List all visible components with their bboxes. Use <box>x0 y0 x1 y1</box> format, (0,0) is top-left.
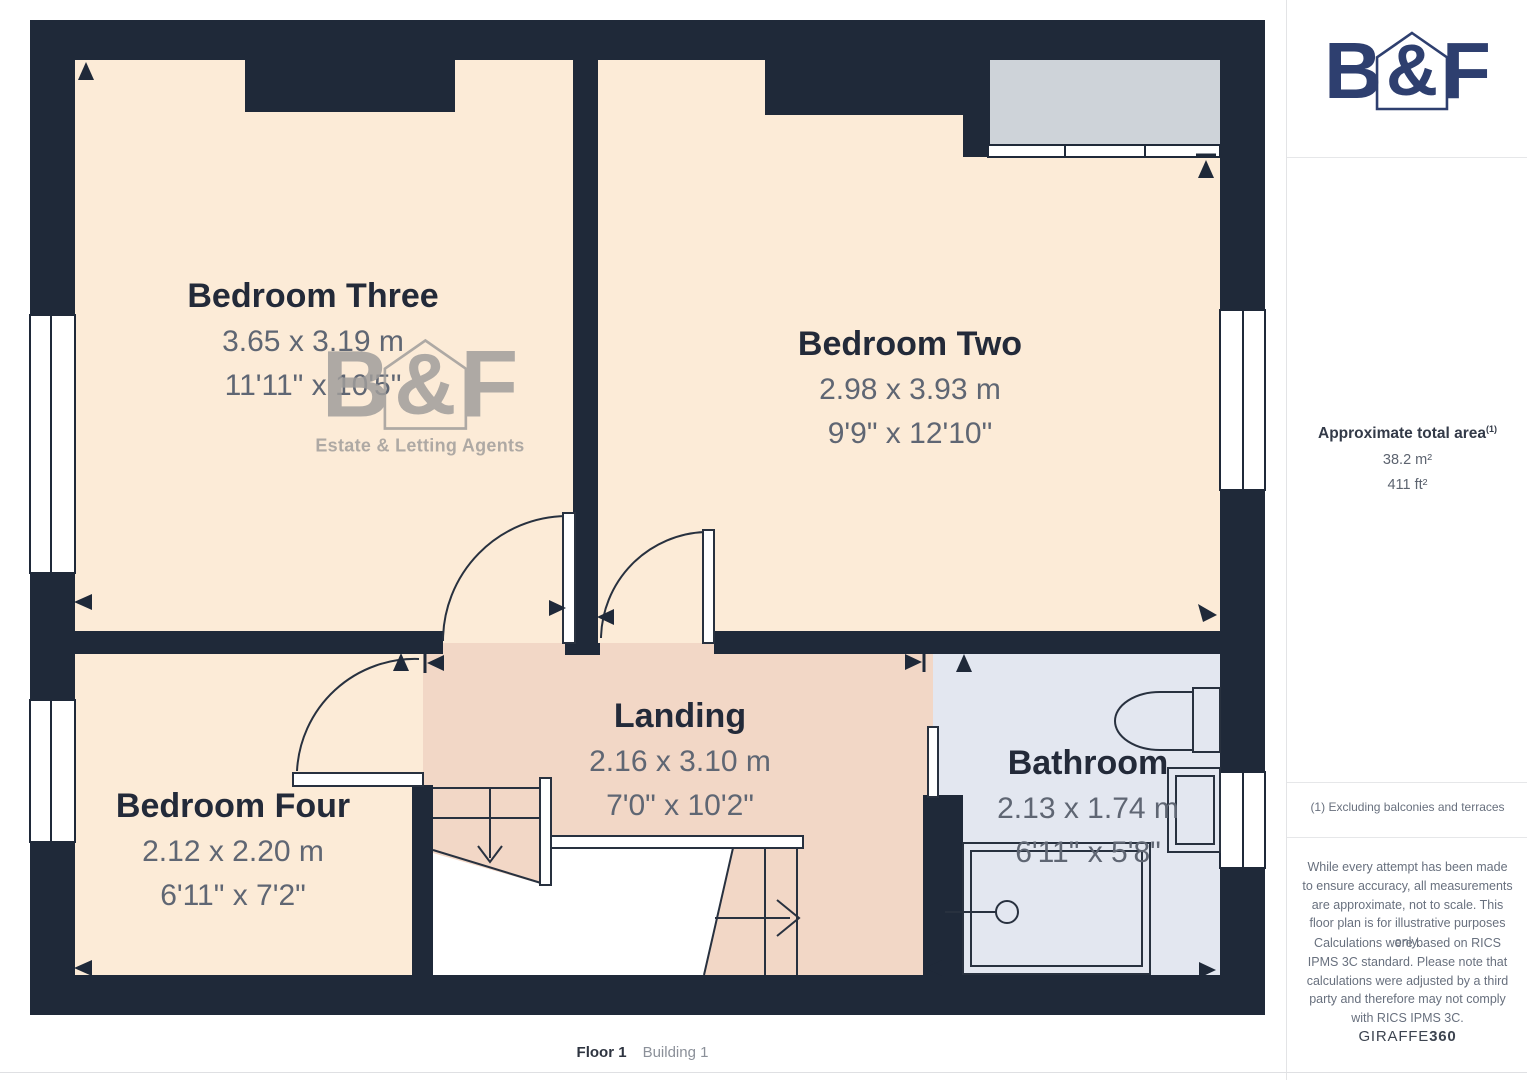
floor-plan-drawing <box>0 0 1285 1080</box>
room-label-bedroom-three: Bedroom Three 3.65 x 3.19 m 11'11" x 10'… <box>187 272 438 408</box>
divider <box>1287 157 1527 158</box>
room-name: Bedroom Four <box>116 782 350 830</box>
banister <box>540 778 551 885</box>
banister <box>551 836 803 848</box>
logo-ampersand: & <box>1386 35 1438 107</box>
sidebar-brand-logo: B & F <box>1287 28 1527 114</box>
bf-logo: B & F <box>1324 28 1491 114</box>
closet-area <box>988 60 1220 147</box>
info-sidebar: B & F Approximate total area(1) 38.2 m² … <box>1286 0 1527 1080</box>
total-area-title: Approximate total area(1) <box>1287 424 1527 443</box>
giraffe360-logo: GIRAFFE360 <box>1287 1028 1527 1045</box>
floor-plan: Bedroom Three 3.65 x 3.19 m 11'11" x 10'… <box>0 0 1285 1080</box>
room-dimensions-imperial: 11'11" x 10'5" <box>187 364 438 408</box>
door-leaf <box>563 513 575 643</box>
room-name: Bathroom <box>997 739 1179 787</box>
room-dimensions-imperial: 9'9" x 12'10" <box>798 412 1022 456</box>
disclaimer-rics: Calculations were based on RICS IPMS 3C … <box>1301 934 1514 1028</box>
room-dimensions-imperial: 6'11" x 5'8" <box>997 831 1179 875</box>
total-area-block: Approximate total area(1) 38.2 m² 411 ft… <box>1287 424 1527 493</box>
floor-label: Floor 1 <box>577 1044 627 1061</box>
stairwell-void <box>433 848 733 975</box>
divider <box>1287 782 1527 783</box>
building-label: Building 1 <box>643 1044 709 1061</box>
room-dimensions-metric: 3.65 x 3.19 m <box>187 320 438 364</box>
bottom-divider <box>0 1072 1527 1073</box>
floorplan-page: Bedroom Three 3.65 x 3.19 m 11'11" x 10'… <box>0 0 1527 1080</box>
room-name: Bedroom Three <box>187 272 438 320</box>
plan-footer: Floor 1Building 1 <box>0 1044 1285 1061</box>
room-dimensions-metric: 2.12 x 2.20 m <box>116 830 350 874</box>
room-dimensions-imperial: 7'0" x 10'2" <box>589 784 771 828</box>
room-dimensions-metric: 2.98 x 3.93 m <box>798 368 1022 412</box>
room-dimensions-metric: 2.13 x 1.74 m <box>997 787 1179 831</box>
room-label-landing: Landing 2.16 x 3.10 m 7'0" x 10'2" <box>589 692 771 828</box>
area-footnote: (1) Excluding balconies and terraces <box>1287 800 1527 814</box>
logo-house-ampersand: & <box>1374 28 1450 114</box>
room-label-bedroom-two: Bedroom Two 2.98 x 3.93 m 9'9" x 12'10" <box>798 320 1022 456</box>
room-dimensions-metric: 2.16 x 3.10 m <box>589 740 771 784</box>
room-label-bathroom: Bathroom 2.13 x 1.74 m 6'11" x 5'8" <box>997 739 1179 875</box>
window <box>30 315 75 573</box>
room-name: Landing <box>589 692 771 740</box>
divider <box>1287 837 1527 838</box>
door-leaf <box>703 530 714 643</box>
room-dimensions-imperial: 6'11" x 7'2" <box>116 874 350 918</box>
total-area-imperial: 411 ft² <box>1287 477 1527 493</box>
total-area-metric: 38.2 m² <box>1287 452 1527 468</box>
giraffe360-suffix: 360 <box>1429 1028 1456 1045</box>
giraffe360-name: GIRAFFE <box>1358 1028 1429 1045</box>
room-label-bedroom-four: Bedroom Four 2.12 x 2.20 m 6'11" x 7'2" <box>116 782 350 918</box>
footnote-marker: (1) <box>1486 424 1497 434</box>
door-leaf <box>928 727 938 797</box>
room-name: Bedroom Two <box>798 320 1022 368</box>
closet-window-strip <box>988 145 1220 157</box>
window <box>30 700 75 842</box>
